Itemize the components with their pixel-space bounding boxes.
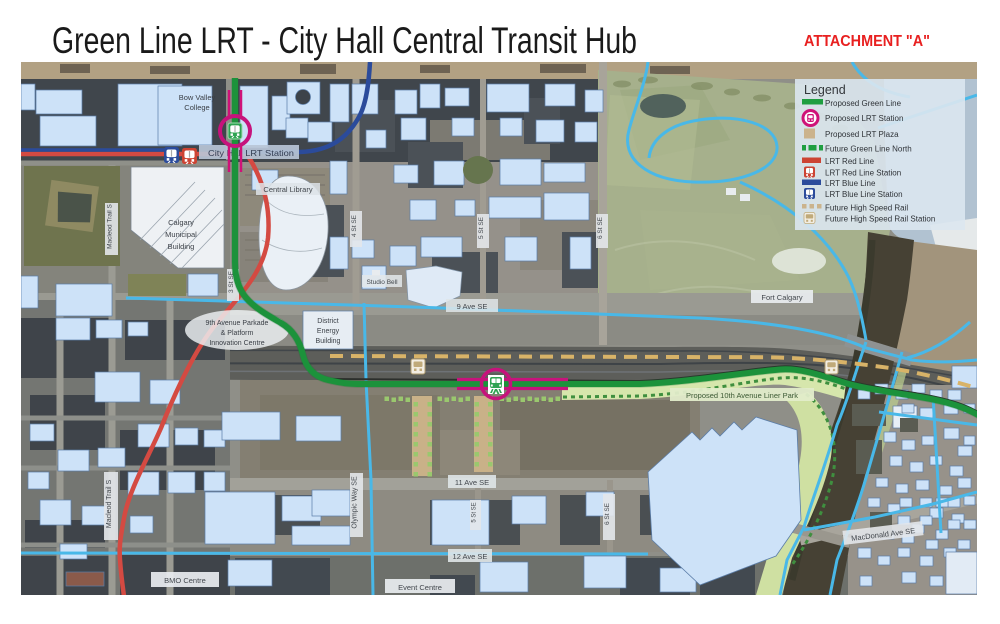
svg-text:9th Avenue Parkade: 9th Avenue Parkade: [206, 320, 269, 327]
svg-text:Future High Speed Rail Station: Future High Speed Rail Station: [825, 215, 935, 224]
svg-text:Energy: Energy: [317, 328, 340, 335]
svg-text:LRT Red Line Station: LRT Red Line Station: [825, 169, 901, 178]
svg-text:Olympic Way SE: Olympic Way SE: [352, 476, 359, 529]
svg-text:6 St SE: 6 St SE: [604, 502, 611, 525]
svg-text:City Hall LRT Station: City Hall LRT Station: [208, 148, 294, 158]
svg-text:LRT Red Line: LRT Red Line: [825, 157, 875, 166]
svg-text:BMO Centre: BMO Centre: [164, 576, 206, 585]
svg-text:11 Ave SE: 11 Ave SE: [455, 478, 489, 487]
svg-text:Proposed 10th Avenue Liner Par: Proposed 10th Avenue Liner Park: [686, 391, 798, 400]
svg-text:Proposed LRT Plaza: Proposed LRT Plaza: [825, 130, 899, 139]
svg-text:9 Ave SE: 9 Ave SE: [457, 302, 488, 311]
svg-text:4 St SE: 4 St SE: [351, 214, 358, 237]
svg-text:Bow Valley: Bow Valley: [179, 93, 216, 102]
svg-text:Building: Building: [168, 242, 195, 251]
svg-text:& Platform: & Platform: [221, 330, 254, 337]
svg-text:LRT Blue Line Station: LRT Blue Line Station: [825, 190, 903, 199]
svg-text:Studio Bell: Studio Bell: [366, 279, 398, 286]
svg-text:Legend: Legend: [804, 83, 846, 97]
svg-text:Municipal: Municipal: [165, 230, 197, 239]
svg-text:College: College: [184, 103, 209, 112]
svg-text:Event Centre: Event Centre: [398, 583, 442, 592]
svg-text:5 St SE: 5 St SE: [472, 502, 478, 522]
svg-text:Building: Building: [316, 338, 341, 345]
svg-text:Proposed LRT Station: Proposed LRT Station: [825, 114, 903, 123]
svg-text:District: District: [317, 318, 338, 325]
svg-text:5 St SE: 5 St SE: [478, 216, 485, 239]
svg-text:Green Line LRT - City Hall Cen: Green Line LRT - City Hall Central Trans…: [52, 20, 637, 61]
svg-text:Macleod Trail S: Macleod Trail S: [106, 480, 113, 529]
svg-text:Future Green Line North: Future Green Line North: [825, 145, 912, 154]
svg-text:Macleod Trail S: Macleod Trail S: [107, 203, 114, 248]
svg-text:Calgary: Calgary: [168, 218, 194, 227]
svg-text:LRT Blue Line: LRT Blue Line: [825, 179, 876, 188]
svg-text:6 St SE: 6 St SE: [597, 216, 604, 239]
svg-text:Central Library: Central Library: [263, 185, 312, 194]
svg-text:Future High Speed Rail: Future High Speed Rail: [825, 204, 908, 213]
svg-text:Innovation Centre: Innovation Centre: [209, 340, 264, 347]
svg-text:ATTACHMENT "A": ATTACHMENT "A": [804, 33, 930, 50]
svg-text:Proposed Green Line: Proposed Green Line: [825, 99, 902, 108]
svg-text:Fort Calgary: Fort Calgary: [761, 293, 803, 302]
svg-text:12 Ave SE: 12 Ave SE: [453, 552, 488, 561]
